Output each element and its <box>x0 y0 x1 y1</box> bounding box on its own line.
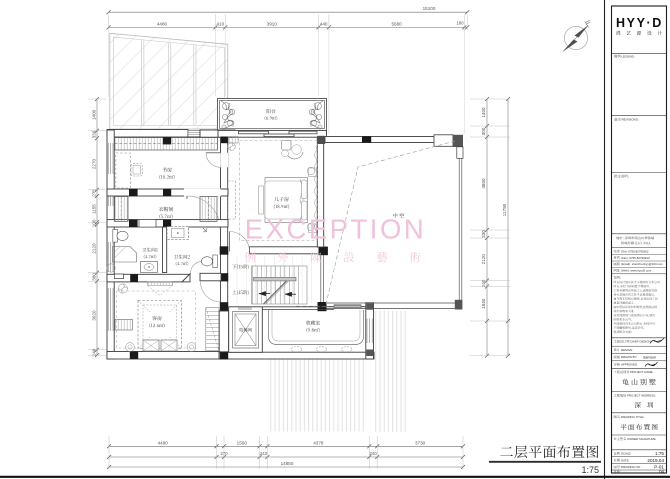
svg-text:100: 100 <box>91 219 96 227</box>
svg-text:1400: 1400 <box>91 109 96 120</box>
svg-text:2270: 2270 <box>91 159 96 170</box>
svg-text:(Tel): 0755-82790362: (Tel): 0755-82790362 <box>621 249 649 253</box>
svg-text:410: 410 <box>216 22 224 27</box>
svg-text:3730: 3730 <box>415 441 426 446</box>
svg-text:4800: 4800 <box>481 178 486 189</box>
svg-text:2120: 2120 <box>91 243 96 254</box>
svg-text:REVISIONS:: REVISIONS: <box>622 118 639 122</box>
svg-text:5680: 5680 <box>391 22 402 27</box>
svg-text:(Email): shenzhenhyy@163.com: (Email): shenzhenhyy@163.com <box>621 262 663 266</box>
svg-text:14850: 14850 <box>281 461 294 466</box>
svg-text:270: 270 <box>220 451 228 456</box>
svg-text:330: 330 <box>91 130 96 138</box>
svg-text:380: 380 <box>91 273 96 281</box>
svg-text:1155: 1155 <box>91 204 96 214</box>
svg-text:Samson: Samson <box>643 356 656 360</box>
svg-text:3910: 3910 <box>267 22 278 27</box>
svg-text:4378: 4378 <box>313 441 324 446</box>
svg-text:3020: 3020 <box>91 310 96 321</box>
svg-text:1840: 1840 <box>481 298 486 309</box>
svg-text:DRAWN BY:: DRAWN BY: <box>621 355 637 359</box>
svg-text:DATE:: DATE: <box>621 458 629 462</box>
svg-text:DRAWING NO.:: DRAWING NO.: <box>621 465 642 469</box>
svg-text:(Fax): 0755-82793913: (Fax): 0755-82793913 <box>621 256 650 260</box>
svg-text:(Web): www.hyyd3.com: (Web): www.hyyd3.com <box>621 269 652 273</box>
svg-text:EXCEPTION: EXCEPTION <box>245 214 426 245</box>
svg-text:PROJECT NAME:: PROJECT NAME: <box>630 370 654 374</box>
svg-text:SCALE:: SCALE: <box>621 452 631 456</box>
svg-text:HYY·D: HYY·D <box>616 16 663 30</box>
svg-text:OWNER SIGNATURE:: OWNER SIGNATURE: <box>627 437 657 441</box>
svg-text:DESIGN:: DESIGN: <box>621 348 633 352</box>
svg-text:240: 240 <box>369 451 377 456</box>
svg-text:440: 440 <box>320 22 328 27</box>
svg-text:CHIEF DESIGN:: CHIEF DESIGN: <box>630 340 652 344</box>
svg-text:1500: 1500 <box>237 441 248 446</box>
svg-text:180: 180 <box>456 21 464 26</box>
svg-text:1400: 1400 <box>481 107 486 118</box>
svg-text:1:75: 1:75 <box>655 451 664 456</box>
svg-text:330: 330 <box>481 230 486 238</box>
svg-text:242: 242 <box>260 451 268 456</box>
svg-text:11790: 11790 <box>502 203 507 216</box>
svg-text:2019.04: 2019.04 <box>647 458 664 463</box>
svg-text:4480: 4480 <box>157 22 168 27</box>
svg-text:04: 04 <box>659 469 664 474</box>
svg-text:PROJECT ADDRESS:: PROJECT ADDRESS: <box>627 394 656 398</box>
svg-text:LEGEND:: LEGEND: <box>622 55 635 59</box>
svg-text:4490: 4490 <box>158 441 169 446</box>
svg-text:APPROVED:: APPROVED: <box>621 363 638 367</box>
svg-text:15100: 15100 <box>423 6 436 11</box>
svg-text:2120: 2120 <box>481 254 486 265</box>
svg-text:1:75: 1:75 <box>581 465 599 475</box>
svg-text:300: 300 <box>481 127 486 135</box>
svg-text:DRAWING TITLE:: DRAWING TITLE: <box>621 415 644 419</box>
